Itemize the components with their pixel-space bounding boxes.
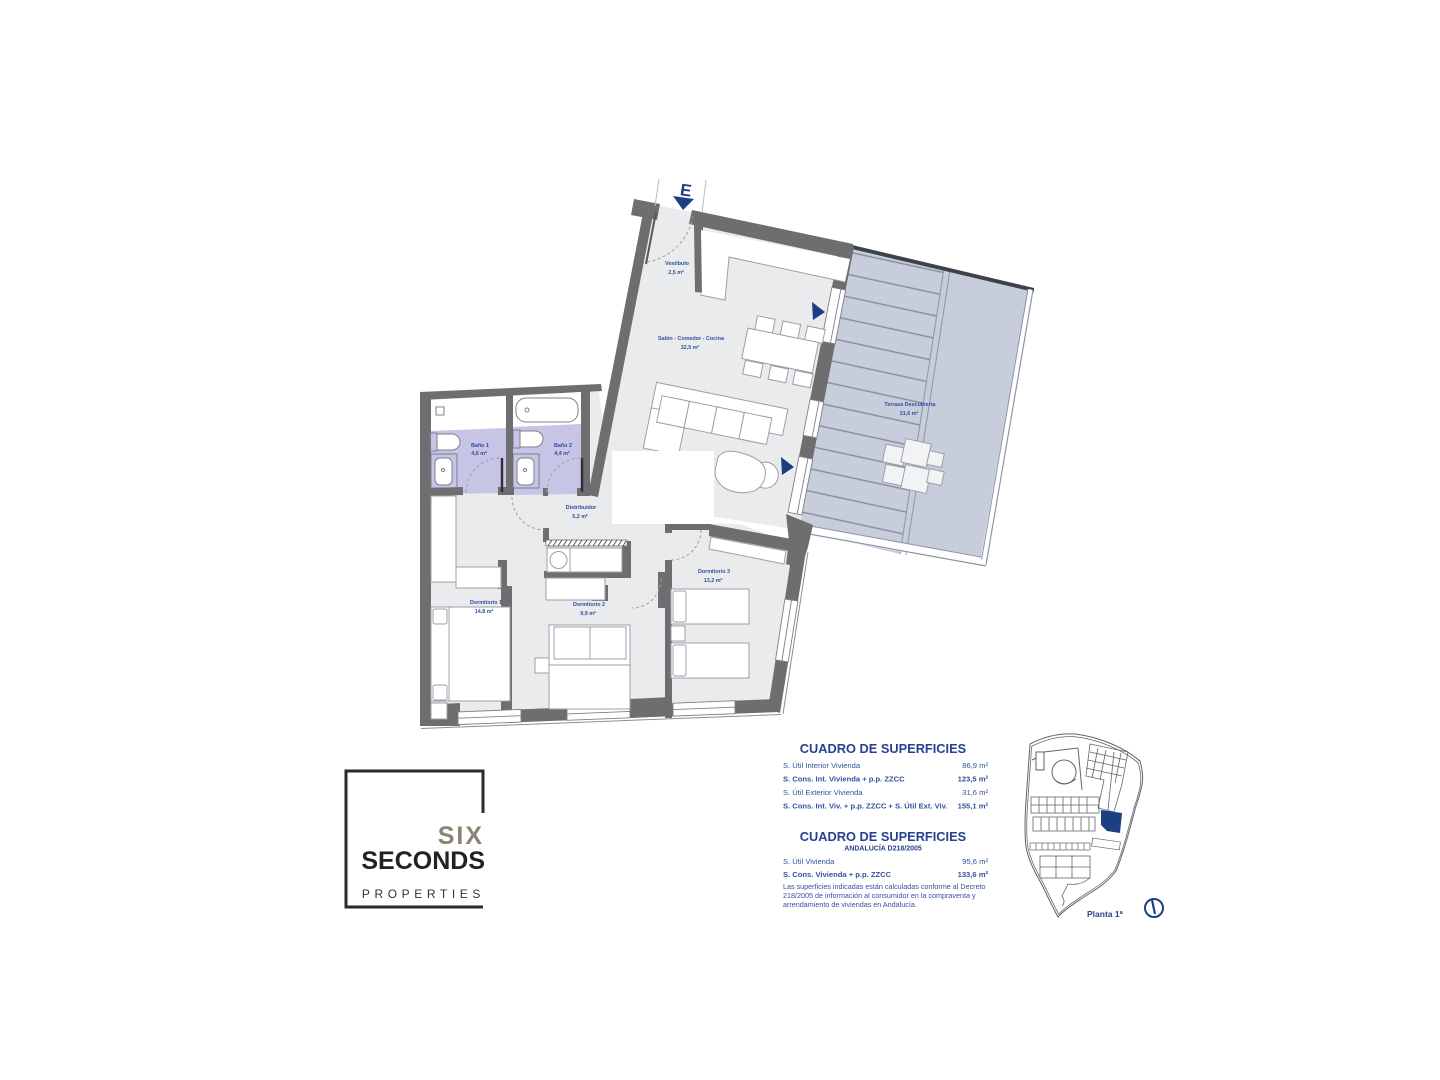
svg-text:95,6 m²: 95,6 m² (962, 857, 988, 866)
svg-text:CUADRO DE SUPERFICIES: CUADRO DE SUPERFICIES (800, 829, 967, 844)
svg-text:Distribuidor: Distribuidor (566, 505, 597, 511)
svg-text:Vestíbulo: Vestíbulo (665, 261, 690, 267)
svg-text:123,5 m²: 123,5 m² (958, 775, 989, 784)
svg-text:4,6 m²: 4,6 m² (471, 451, 487, 457)
svg-text:13,2 m²: 13,2 m² (704, 578, 723, 584)
svg-text:133,6 m²: 133,6 m² (958, 870, 989, 879)
svg-text:5,2 m²: 5,2 m² (572, 514, 588, 520)
svg-text:31,6 m²: 31,6 m² (900, 411, 919, 417)
svg-text:CUADRO DE SUPERFICIES: CUADRO DE SUPERFICIES (800, 741, 967, 756)
svg-text:9,9 m²: 9,9 m² (580, 611, 596, 617)
svg-text:SECONDS: SECONDS (361, 847, 485, 875)
svg-text:Terraza Descubierta: Terraza Descubierta (884, 402, 936, 408)
svg-text:arrendamiento de viviendas en: arrendamiento de viviendas en Andalucía. (783, 900, 917, 909)
svg-text:Baño 2: Baño 2 (554, 443, 572, 449)
svg-text:Baño 1: Baño 1 (471, 443, 489, 449)
svg-text:S. Cons. Int. Vivienda + p.p.: S. Cons. Int. Vivienda + p.p. ZZCC (783, 775, 905, 784)
svg-text:S. Cons. Vivienda + p.p. ZZCC: S. Cons. Vivienda + p.p. ZZCC (783, 870, 892, 879)
svg-text:Dormitorio 2: Dormitorio 2 (573, 602, 605, 608)
svg-text:S. Útil Exterior Vivienda: S. Útil Exterior Vivienda (783, 788, 863, 797)
svg-text:32,5 m²: 32,5 m² (681, 345, 700, 351)
svg-text:Salón - Comedor - Cocina: Salón - Comedor - Cocina (658, 336, 725, 342)
svg-text:S. Cons. Int. Viv. + p.p. ZZCC: S. Cons. Int. Viv. + p.p. ZZCC + S. Útil… (783, 802, 947, 811)
svg-text:SIX: SIX (438, 822, 484, 850)
svg-text:S. Útil Vivienda: S. Útil Vivienda (783, 857, 835, 866)
svg-text:155,1 m²: 155,1 m² (958, 802, 989, 811)
svg-text:31,6 m²: 31,6 m² (962, 788, 988, 797)
svg-text:ANDALUCÍA D218/2005: ANDALUCÍA D218/2005 (844, 844, 922, 853)
svg-text:Planta 1ª: Planta 1ª (1087, 909, 1124, 919)
svg-text:S. Útil Interior Vivienda: S. Útil Interior Vivienda (783, 761, 861, 770)
svg-text:4,4 m²: 4,4 m² (554, 451, 570, 457)
svg-text:Las superficies indicadas está: Las superficies indicadas están calculad… (783, 882, 986, 891)
svg-text:PROPERTIES: PROPERTIES (362, 887, 485, 901)
svg-text:14,8 m²: 14,8 m² (475, 609, 494, 615)
svg-text:218/2005 de información al con: 218/2005 de información al consumidor en… (783, 891, 976, 900)
svg-text:Dormitorio 3: Dormitorio 3 (698, 569, 730, 575)
svg-text:86,9 m²: 86,9 m² (962, 761, 988, 770)
svg-text:2,5 m²: 2,5 m² (668, 270, 684, 276)
svg-text:Dormitorio 1: Dormitorio 1 (470, 600, 502, 606)
